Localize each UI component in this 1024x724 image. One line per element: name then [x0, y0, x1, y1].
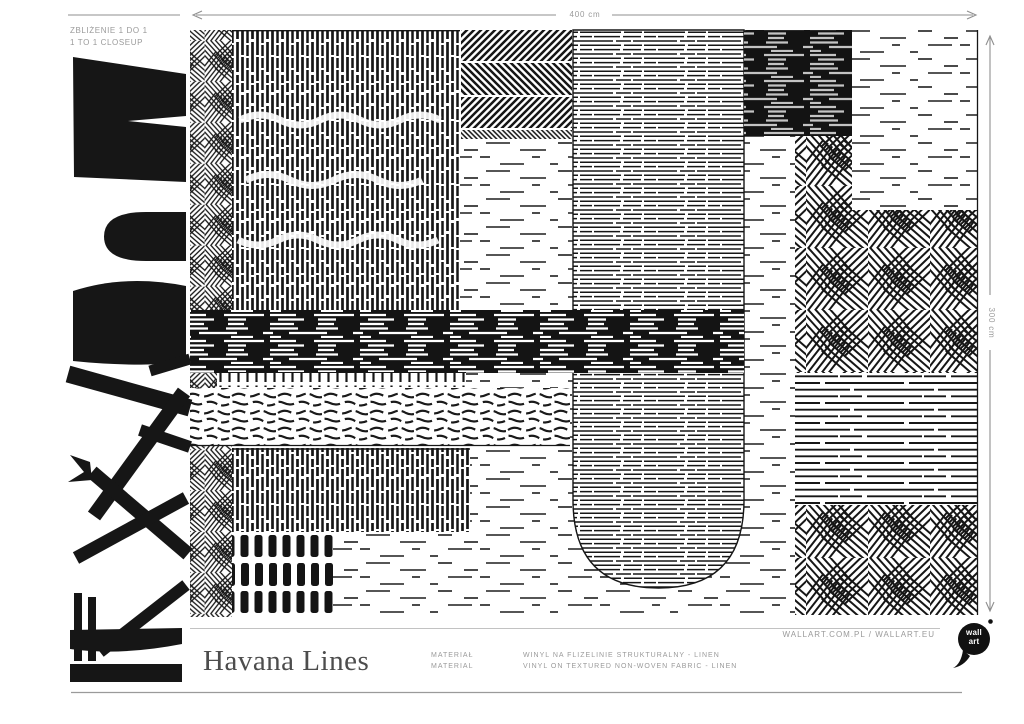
closeup-strip	[68, 57, 190, 682]
closeup-finger-shape	[104, 212, 186, 261]
pattern-artwork	[0, 0, 1024, 724]
closeup-label: ZBLIŻENIE 1 DO 1 1 TO 1 CLOSEUP	[70, 25, 148, 48]
closeup-ragged-bar	[70, 628, 182, 652]
material-label-pl: MATERIAŁ	[431, 650, 474, 661]
pattern-hatch-band-3	[461, 97, 572, 128]
pattern-comb-row	[217, 373, 465, 387]
pattern-wavy-band	[190, 388, 570, 445]
pattern-thick-bars	[232, 532, 333, 616]
product-sheet: ZBLIŻENIE 1 DO 1 1 TO 1 CLOSEUP 400 cm 3…	[0, 0, 1024, 724]
material-value-pl: WINYL NA FLIZELINIE STRUKTURALNY - LINEN	[523, 650, 737, 661]
closeup-solid-bar	[70, 664, 182, 682]
logo-text-line2: art	[958, 638, 990, 647]
closeup-blob-1	[73, 57, 186, 182]
pattern-vertical-lines-top	[232, 30, 460, 312]
pattern-horizontal-lines-right	[795, 373, 978, 505]
pattern-u-column	[573, 30, 744, 588]
height-dimension-label: 300 cm	[984, 300, 996, 346]
logo-text: wall art	[958, 629, 990, 646]
pattern-crosshatch-right-lower	[795, 505, 978, 615]
product-title: Havana Lines	[203, 645, 369, 678]
closeup-label-line1: ZBLIŻENIE 1 DO 1	[70, 25, 148, 37]
pattern-hatch-band-1	[461, 30, 572, 61]
material-value-en: VINYL ON TEXTURED NON-WOVEN FABRIC - LIN…	[523, 661, 737, 672]
material-value: WINYL NA FLIZELINIE STRUKTURALNY - LINEN…	[523, 650, 737, 672]
material-label-en: MATERIAL	[431, 661, 474, 672]
pattern-hatch-band-2	[461, 63, 572, 95]
closeup-label-line2: 1 TO 1 CLOSEUP	[70, 37, 148, 49]
logo-dot	[988, 619, 993, 624]
website-links: WALLART.COM.PL / WALLART.EU	[640, 630, 935, 639]
mural-pattern	[190, 30, 978, 617]
pattern-vertical-lines-bottom	[232, 448, 470, 532]
pattern-hatch-band-4	[461, 130, 572, 139]
closeup-brush-strokes	[68, 359, 190, 652]
closeup-blob-2	[73, 281, 186, 365]
pattern-black-band	[190, 310, 744, 373]
material-label: MATERIAŁ MATERIAL	[431, 650, 474, 672]
width-dimension-label: 400 cm	[559, 10, 611, 19]
pattern-crosshatch-right-upper	[795, 210, 978, 373]
pattern-crosshatch-right-small	[795, 136, 852, 210]
